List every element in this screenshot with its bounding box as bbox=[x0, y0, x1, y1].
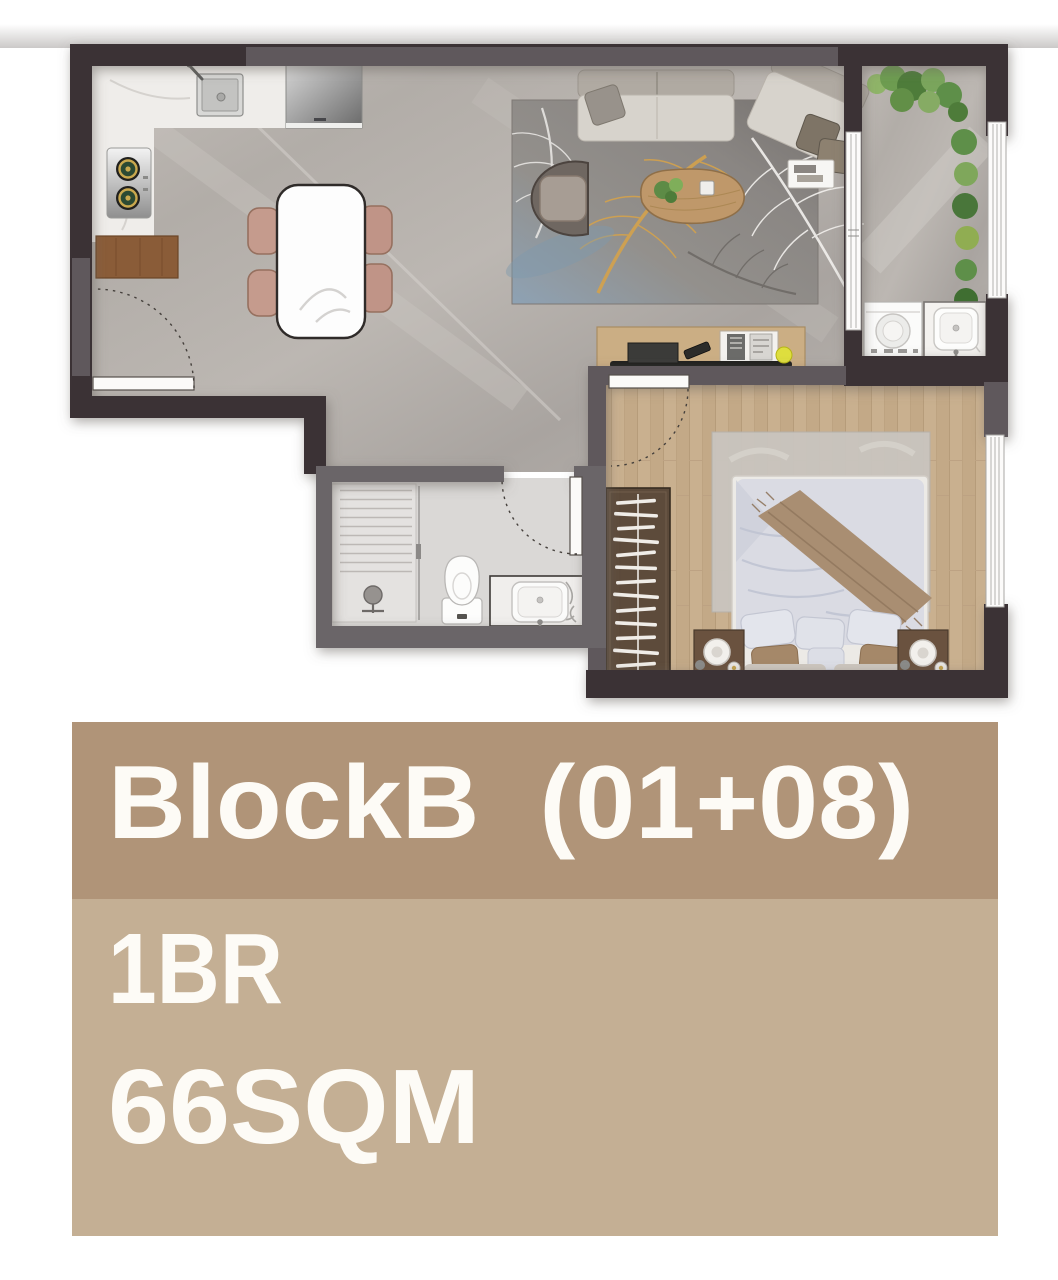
plant-icon bbox=[669, 178, 683, 192]
wall-bedroom-right-bottom bbox=[984, 604, 1008, 678]
wall-bathroom-left bbox=[316, 466, 332, 648]
wall-left-gray bbox=[72, 258, 90, 376]
sliding-door-icon bbox=[846, 132, 861, 330]
nightstand-icon bbox=[898, 630, 948, 676]
refrigerator-handle bbox=[314, 118, 326, 121]
wall-bedroom-bottom bbox=[586, 670, 1008, 698]
washing-machine-icon bbox=[864, 302, 922, 360]
plant-icon bbox=[665, 191, 677, 203]
kitchen-cabinet-icon bbox=[96, 236, 178, 278]
door-leaf bbox=[609, 375, 689, 388]
gas-stove-icon bbox=[107, 148, 151, 218]
window-icon bbox=[988, 122, 1006, 298]
floor-plan-canvas: BlockB (01+08) 1BR 66SQM bbox=[0, 0, 1058, 1280]
side-tray-icon bbox=[788, 160, 834, 188]
tv-icon bbox=[628, 343, 678, 363]
wardrobe-hangers-icon bbox=[606, 488, 670, 678]
laundry-sink-icon bbox=[924, 302, 986, 362]
floor-plan-card: BlockB (01+08) 1BR 66SQM bbox=[0, 0, 1058, 1280]
window-icon bbox=[986, 435, 1004, 607]
wall-bedroom-right-top bbox=[984, 382, 1008, 437]
entry-threshold-icon bbox=[93, 377, 194, 390]
pillow-icon bbox=[846, 609, 902, 650]
wall-top-gray bbox=[246, 47, 838, 66]
coffee-table-icon bbox=[641, 169, 744, 223]
glass-handle bbox=[416, 544, 421, 559]
shower-head-icon bbox=[364, 586, 382, 604]
toilet-icon bbox=[442, 556, 482, 624]
decor-ball bbox=[776, 347, 792, 363]
unit-area: 66SQM bbox=[108, 1048, 480, 1166]
info-panel: BlockB (01+08) 1BR 66SQM bbox=[72, 722, 998, 1236]
pillow-icon bbox=[740, 609, 796, 650]
wall-bottom-left bbox=[70, 396, 326, 418]
wall-bathroom-right bbox=[582, 466, 606, 648]
magazine-icon bbox=[750, 334, 772, 360]
dining-table-icon bbox=[277, 185, 365, 338]
wall-bathroom-top bbox=[316, 466, 504, 482]
bedroom-count: 1BR bbox=[108, 913, 283, 1025]
vanity-basin-icon bbox=[490, 576, 586, 633]
door-leaf bbox=[570, 477, 582, 555]
refrigerator-base bbox=[286, 123, 362, 128]
dining-chair-icon bbox=[248, 270, 280, 316]
tv-console-icon bbox=[597, 327, 805, 368]
dining-chair-icon bbox=[248, 208, 280, 254]
wall-bathroom-bottom bbox=[316, 626, 604, 648]
kitchen-counter bbox=[92, 58, 286, 128]
nightstand-icon bbox=[694, 630, 744, 676]
wall-step bbox=[304, 416, 326, 474]
pillow-icon bbox=[795, 616, 845, 651]
shower-icon bbox=[332, 484, 421, 622]
unit-title: BlockB (01+08) bbox=[108, 745, 914, 861]
wall-laundry-bottom bbox=[844, 356, 1008, 386]
dish-icon bbox=[700, 181, 714, 195]
